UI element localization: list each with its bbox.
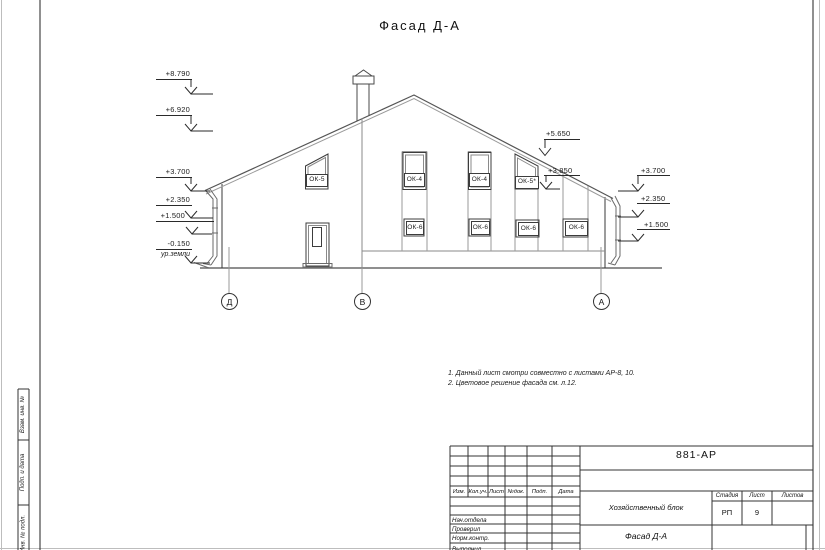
mark-3850-label: +3.850 bbox=[548, 166, 572, 175]
window-label-text: ОК-6 bbox=[473, 225, 488, 232]
ground-level-label: ур.земли bbox=[141, 250, 190, 259]
downspout-right bbox=[608, 196, 621, 265]
level-mark-2350-right bbox=[618, 204, 670, 218]
stamp-row-normkontr: Норм.контр. bbox=[452, 534, 489, 543]
ground-line bbox=[194, 263, 662, 269]
axis-lines bbox=[229, 247, 601, 293]
level-mark-8790 bbox=[156, 80, 213, 95]
level-mark-6920 bbox=[156, 116, 213, 132]
sidebar-label-inv-podl: Инв. № подл. bbox=[19, 505, 30, 550]
window-label-ok4a: ОК-4 bbox=[404, 173, 425, 187]
stamp-col-podp: Подп. bbox=[527, 488, 552, 497]
mark-2350-right-label: +2.350 bbox=[641, 194, 665, 203]
sidebar-label-vzam-inv: Взам. инв. № bbox=[18, 389, 29, 440]
entry-door bbox=[303, 223, 332, 267]
list-value: 9 bbox=[742, 508, 772, 517]
window-label-text: ОК-5 bbox=[309, 177, 324, 184]
window-label-text: ОК-5* bbox=[518, 179, 536, 186]
axis-bubble-v: В bbox=[354, 293, 371, 310]
level-mark-1500-left bbox=[156, 222, 214, 235]
level-mark-3700-right bbox=[618, 176, 670, 192]
window-label-ok6d: ОК-6 bbox=[565, 221, 588, 236]
note-1: 1. Данный лист смотри совместно с листам… bbox=[448, 369, 635, 379]
stage-value: РП bbox=[712, 508, 742, 517]
window-label-text: ОК-6 bbox=[569, 225, 584, 232]
mark-0150-label: -0.150 bbox=[150, 239, 190, 248]
stage-header: Стадия bbox=[712, 492, 742, 501]
note-2: 2. Цветовое решение фасада см. л.12. bbox=[448, 379, 577, 389]
sheet-title: Фасад Д-А bbox=[340, 18, 500, 33]
window-label-ok6b: ОК-6 bbox=[471, 221, 490, 235]
axis-letter: В bbox=[360, 297, 366, 307]
listov-header: Листов bbox=[772, 492, 813, 501]
mark-5650-label: +5.650 bbox=[546, 129, 570, 138]
object-name: Хозяйственный блок bbox=[580, 503, 712, 512]
window-label-ok5s: ОК-5* bbox=[515, 176, 539, 189]
stamp-col-izm: Изм. bbox=[450, 488, 468, 497]
axis-letter: А bbox=[599, 297, 605, 307]
mark-6920-label: +6.920 bbox=[150, 105, 190, 114]
stamp-row-proveril: Проверил bbox=[452, 525, 480, 534]
window-label-text: ОК-4 bbox=[472, 177, 487, 184]
level-marks bbox=[156, 80, 670, 264]
downspout-left bbox=[203, 189, 218, 265]
wall-joint-and-plinth bbox=[362, 118, 605, 268]
mark-1500-left-label: +1.500 bbox=[145, 211, 185, 220]
sidebar-label-podp-data: Подп. и дата bbox=[18, 440, 29, 505]
sheet-edges bbox=[0, 0, 825, 550]
window-label-ok6a: ОК-6 bbox=[406, 221, 424, 235]
stamp-col-list: Лист bbox=[488, 488, 505, 497]
window-label-text: ОК-6 bbox=[407, 225, 422, 232]
stamp-col-data: Дата bbox=[552, 488, 580, 497]
window-label-ok6c: ОК-6 bbox=[518, 222, 539, 236]
mark-1500-right-label: +1.500 bbox=[644, 220, 668, 229]
windows-ok6 bbox=[404, 219, 588, 237]
stamp-col-ndok: №док. bbox=[505, 488, 527, 497]
axis-bubble-d: Д bbox=[221, 293, 238, 310]
building-elevation bbox=[194, 70, 662, 293]
doc-number: 881-АР bbox=[580, 451, 813, 460]
mark-3700-right-label: +3.700 bbox=[641, 166, 665, 175]
axis-letter: Д bbox=[227, 297, 233, 307]
facade-drawing bbox=[0, 0, 825, 550]
stamp-sheet-name: Фасад Д-А bbox=[580, 532, 712, 541]
stamp-row-vypolnil: Выполнил bbox=[452, 545, 481, 550]
axis-bubble-a: А bbox=[593, 293, 610, 310]
window-label-ok4b: ОК-4 bbox=[469, 173, 490, 187]
drawing-sheet: Фасад Д-А +8.790 +6.920 +3.700 +2.350 +1… bbox=[0, 0, 825, 550]
window-label-text: ОК-6 bbox=[521, 226, 536, 233]
level-mark-1500-right bbox=[618, 230, 670, 242]
list-header: Лист bbox=[742, 492, 772, 501]
level-mark-3700-left bbox=[156, 178, 210, 192]
window-label-text: ОК-4 bbox=[407, 177, 422, 184]
window-label-ok5: ОК-5 bbox=[306, 174, 328, 187]
level-mark-5650 bbox=[539, 140, 580, 156]
mark-3700-left-label: +3.700 bbox=[150, 167, 190, 176]
mark-2350-left-label: +2.350 bbox=[150, 195, 190, 204]
mark-8790-label: +8.790 bbox=[150, 69, 190, 78]
stamp-col-kol: Кол.уч. bbox=[468, 488, 488, 497]
frame-lines bbox=[40, 0, 813, 550]
stamp-row-nachotdela: Нач.отдела bbox=[452, 516, 487, 525]
chimney bbox=[353, 70, 374, 121]
